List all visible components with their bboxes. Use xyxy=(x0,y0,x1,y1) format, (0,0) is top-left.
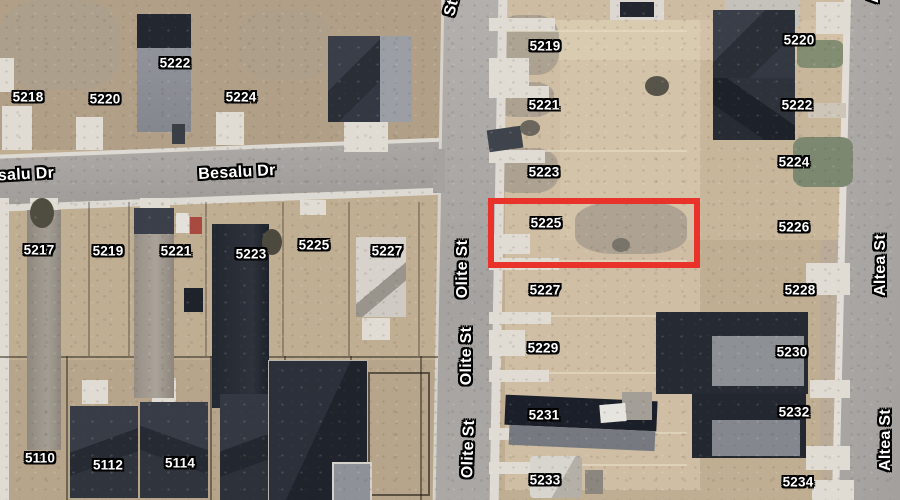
tree xyxy=(520,120,540,136)
highlighted-parcel-outline xyxy=(488,198,700,268)
street-label-olite-st: Olite St xyxy=(458,327,476,385)
vehicle xyxy=(172,124,185,144)
road-intersection xyxy=(433,149,445,193)
vehicle xyxy=(190,217,202,234)
address-label-5217: 5217 xyxy=(24,243,55,258)
driveway-pad xyxy=(816,2,850,34)
driveway-pad xyxy=(76,117,103,150)
driveway-pad xyxy=(300,200,326,215)
dirt-patch xyxy=(240,10,330,80)
address-label-5224: 5224 xyxy=(226,90,257,105)
fence-line xyxy=(348,202,350,356)
street-label-olite-st: Olite St xyxy=(454,240,472,298)
aerial-map-canvas: 5218522052225224521752195221522352255227… xyxy=(0,0,900,500)
driveway-pad xyxy=(489,312,551,324)
address-label-5114: 5114 xyxy=(165,456,195,471)
address-label-5219: 5219 xyxy=(93,244,124,259)
address-label-5221: 5221 xyxy=(529,98,560,113)
address-label-5229: 5229 xyxy=(528,341,559,356)
driveway-pad xyxy=(808,103,846,118)
shed xyxy=(487,126,524,153)
house xyxy=(380,36,412,122)
address-label-5221: 5221 xyxy=(161,244,192,259)
vehicle xyxy=(176,213,189,233)
driveway-pad xyxy=(2,106,32,150)
driveway-pad xyxy=(362,318,390,340)
fence-line xyxy=(128,202,130,356)
driveway-pad xyxy=(489,18,555,31)
driveway-pad xyxy=(812,480,854,500)
building xyxy=(620,2,654,17)
street-label-altea-st: Altea St xyxy=(865,0,883,3)
vehicle xyxy=(599,403,626,423)
dirt-patch xyxy=(0,0,120,90)
house xyxy=(712,336,804,386)
driveway-pad xyxy=(806,446,850,470)
address-label-5218: 5218 xyxy=(13,90,44,105)
address-label-5112: 5112 xyxy=(93,458,123,473)
driveway-pad xyxy=(0,58,14,92)
address-label-5233: 5233 xyxy=(530,473,561,488)
fence-line xyxy=(282,202,284,356)
fence-line xyxy=(88,202,90,356)
address-label-5220: 5220 xyxy=(784,33,815,48)
address-label-5232: 5232 xyxy=(779,405,810,420)
sidewalk xyxy=(0,198,9,500)
house xyxy=(134,208,174,398)
driveway-pad xyxy=(489,150,545,163)
address-label-5228: 5228 xyxy=(785,283,816,298)
house xyxy=(332,462,372,500)
house xyxy=(70,406,138,498)
driveway-pad xyxy=(489,370,549,382)
address-label-5225: 5225 xyxy=(299,238,330,253)
address-label-5231: 5231 xyxy=(529,408,560,423)
address-label-5225: 5225 xyxy=(531,216,562,231)
house xyxy=(137,14,191,48)
driveway-pad xyxy=(216,112,244,145)
house xyxy=(140,402,208,498)
address-label-5220: 5220 xyxy=(90,92,121,107)
house xyxy=(328,36,380,122)
building xyxy=(585,470,603,494)
address-label-5223: 5223 xyxy=(236,247,267,262)
address-label-5110: 5110 xyxy=(25,451,55,466)
address-label-5226: 5226 xyxy=(779,220,810,235)
fence-line xyxy=(418,202,420,356)
address-label-5230: 5230 xyxy=(777,345,808,360)
street-label-olite-st: Olite St xyxy=(459,419,479,478)
address-label-5234: 5234 xyxy=(783,475,814,490)
driveway-pad xyxy=(810,380,850,398)
driveway-pad xyxy=(489,58,529,88)
driveway-pad xyxy=(344,117,388,152)
fenced-yard xyxy=(368,372,430,496)
address-label-5227: 5227 xyxy=(372,244,403,259)
driveway-pad xyxy=(82,380,108,404)
street-label-altea-st: Altea St xyxy=(872,234,890,296)
driveway-pad xyxy=(489,86,549,98)
fence-line xyxy=(205,202,207,356)
address-label-5224: 5224 xyxy=(779,155,810,170)
shed xyxy=(622,392,652,420)
vehicle xyxy=(184,288,203,312)
address-label-5222: 5222 xyxy=(160,56,191,71)
address-label-5222: 5222 xyxy=(782,98,813,113)
tree xyxy=(645,76,669,96)
address-label-5227: 5227 xyxy=(530,283,561,298)
address-label-5223: 5223 xyxy=(529,165,560,180)
tree xyxy=(30,198,54,228)
street-label-salu-dr: salu Dr xyxy=(0,165,55,186)
address-label-5219: 5219 xyxy=(530,39,561,54)
house xyxy=(712,420,800,456)
house xyxy=(134,208,174,234)
street-label-altea-st: Altea St xyxy=(877,409,895,471)
fence-line xyxy=(66,356,68,500)
driveway-pad xyxy=(489,330,525,356)
